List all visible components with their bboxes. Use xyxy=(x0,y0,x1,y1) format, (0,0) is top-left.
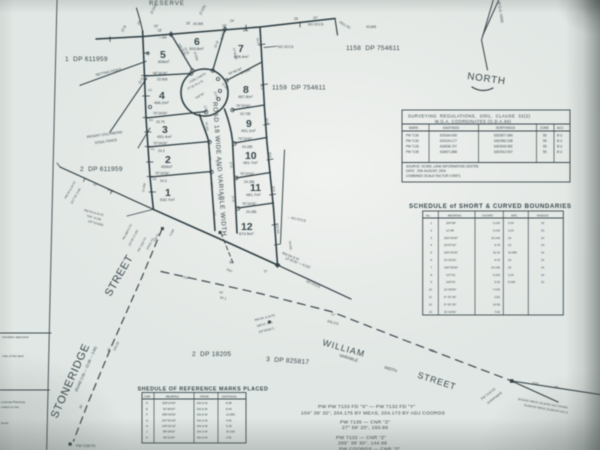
svg-text:PW PW 7133 FD "X" — PW 7132 FD: PW PW 7133 FD "X" — PW 7132 FD "Y" xyxy=(318,404,416,410)
svg-text:23.735: 23.735 xyxy=(240,112,250,116)
svg-text:10: 10 xyxy=(541,273,545,277)
svg-text:RADIUS: RADIUS xyxy=(537,214,548,218)
svg-text:24.285: 24.285 xyxy=(242,145,252,149)
svg-text:127°01': 127°01' xyxy=(446,273,456,277)
svg-text:10: 10 xyxy=(541,228,545,232)
svg-text:1158 DP 754611: 1158 DP 754611 xyxy=(346,45,400,52)
svg-text:DH & W: DH & W xyxy=(197,413,208,417)
svg-text:14: 14 xyxy=(541,265,545,269)
svg-text:10: 10 xyxy=(541,221,545,225)
svg-text:23.75: 23.75 xyxy=(156,120,165,124)
svg-text:12: 12 xyxy=(429,302,433,306)
svg-text:9.79: 9.79 xyxy=(494,243,500,247)
svg-text:PM 7133: PM 7133 xyxy=(406,145,419,149)
svg-text:—AA: —AA xyxy=(159,36,167,40)
svg-text:24.285: 24.285 xyxy=(246,210,256,214)
svg-text:NO OCCS: NO OCCS xyxy=(278,45,294,49)
svg-text:6302992.338: 6302992.338 xyxy=(494,139,513,143)
svg-text:3.225: 3.225 xyxy=(493,221,501,225)
svg-text:7.215: 7.215 xyxy=(493,288,501,292)
svg-text:10°: 10° xyxy=(313,16,319,20)
svg-text:95°34'30": 95°34'30" xyxy=(153,72,168,76)
svg-text:MARK: MARK xyxy=(409,126,419,130)
svg-text:M.G.A. COORDINATES (G.D.A.94): M.G.A. COORDINATES (G.D.A.94) xyxy=(435,119,511,124)
svg-text:104° 39' 32", 204.175 BY MEAS: 104° 39' 32", 204.175 BY MEAS, 204.173 B… xyxy=(301,411,446,417)
svg-text:DATE: 20th AUGUST, 2004: DATE: 20th AUGUST, 2004 xyxy=(406,169,446,173)
svg-text:105°51': 105°51' xyxy=(446,280,456,284)
svg-text:24.3: 24.3 xyxy=(158,149,165,153)
svg-text:532.7m²: 532.7m² xyxy=(160,197,175,202)
svg-text:1159 DP 754611: 1159 DP 754611 xyxy=(272,85,326,92)
svg-text:7.02: 7.02 xyxy=(494,310,500,314)
svg-text:(2.5): (2.5) xyxy=(215,160,220,166)
svg-text:18': 18' xyxy=(158,29,163,33)
svg-text:618936.707: 618936.707 xyxy=(440,145,457,149)
svg-text:BEARING: BEARING xyxy=(166,395,180,399)
svg-text:29°57'00": 29°57'00" xyxy=(444,243,456,247)
svg-text:ZONE: ZONE xyxy=(540,126,549,130)
svg-text:190°29'00": 190°29'00" xyxy=(444,265,458,269)
svg-text:3.23: 3.23 xyxy=(508,228,514,232)
svg-text:ACC: ACC xyxy=(557,126,564,130)
svg-text:619104.177: 619104.177 xyxy=(440,139,457,143)
svg-text:16.8: 16.8 xyxy=(268,152,273,158)
svg-text:PM 7135: PM 7135 xyxy=(406,150,419,154)
svg-text:14.56: 14.56 xyxy=(493,302,501,306)
svg-text:55: 55 xyxy=(543,134,547,138)
svg-text:9° 03' 00": 9° 03' 00" xyxy=(444,302,456,306)
svg-text:23.905: 23.905 xyxy=(157,78,167,82)
svg-text:B U: B U xyxy=(557,145,563,149)
svg-text:75°24'00": 75°24'00" xyxy=(153,112,168,116)
svg-text:CHORD: CHORD xyxy=(482,214,494,218)
svg-text:15.145: 15.145 xyxy=(491,265,500,269)
svg-text:CNR: CNR xyxy=(144,395,150,399)
svg-text:55: 55 xyxy=(543,139,547,143)
svg-text:618871.888: 618871.888 xyxy=(440,150,457,154)
svg-text:606m²: 606m² xyxy=(158,59,170,64)
svg-text:205°24'00": 205°24'00" xyxy=(444,251,458,255)
svg-text:BEARING: BEARING xyxy=(448,214,462,218)
svg-text:8.38: 8.38 xyxy=(226,401,232,405)
svg-text:E: E xyxy=(146,407,148,411)
svg-text:3.34: 3.34 xyxy=(508,221,514,225)
svg-text:25': 25' xyxy=(186,22,191,26)
svg-text:No.: No. xyxy=(426,214,431,218)
svg-text:B U: B U xyxy=(557,134,563,138)
svg-text:A A: A A xyxy=(243,29,249,33)
svg-text:CC: CC xyxy=(151,147,155,151)
svg-text:358°33'00": 358°33'00" xyxy=(162,413,176,417)
svg-text:3.225: 3.225 xyxy=(493,273,501,277)
svg-text:466.2m²: 466.2m² xyxy=(154,100,169,105)
svg-text:15°: 15° xyxy=(222,24,228,28)
svg-text:75°24'00": 75°24'00" xyxy=(236,104,251,108)
svg-text:24.3: 24.3 xyxy=(160,179,167,183)
svg-text:21°31'00": 21°31'00" xyxy=(444,258,456,262)
svg-text:9° 03' 00": 9° 03' 00" xyxy=(444,295,456,299)
svg-text:16: 16 xyxy=(508,265,512,269)
svg-text:24.285: 24.285 xyxy=(244,180,254,184)
svg-text:467.8m²: 467.8m² xyxy=(238,94,253,99)
svg-text:21.5: 21.5 xyxy=(260,84,265,90)
svg-text:CC: CC xyxy=(148,88,152,92)
svg-text:11: 11 xyxy=(429,295,432,299)
svg-text:15.5: 15.5 xyxy=(210,182,215,188)
svg-text:6302877.684: 6302877.684 xyxy=(494,134,513,138)
svg-text:5.335: 5.335 xyxy=(508,280,516,284)
svg-text:3.24: 3.24 xyxy=(508,273,514,277)
svg-text:2.81: 2.81 xyxy=(494,295,500,299)
svg-text:(2.5): (2.5) xyxy=(229,162,234,168)
svg-text:21°29'40": 21°29'40" xyxy=(444,288,456,292)
svg-text:16.8: 16.8 xyxy=(265,118,270,124)
svg-text:14: 14 xyxy=(541,236,545,240)
svg-text:43.845: 43.845 xyxy=(366,25,376,29)
svg-text:9.79: 9.79 xyxy=(494,258,500,262)
svg-text:6302912.507: 6302912.507 xyxy=(494,150,513,154)
svg-text:204°58': 204°58' xyxy=(446,221,456,225)
svg-text:F: F xyxy=(146,413,148,417)
svg-text:NORTHINGS: NORTHINGS xyxy=(496,126,515,130)
svg-text:10: 10 xyxy=(429,288,433,292)
svg-text:10: 10 xyxy=(541,280,545,284)
svg-text:459m²: 459m² xyxy=(161,164,173,169)
svg-text:10: 10 xyxy=(508,243,512,247)
svg-text:25': 25' xyxy=(294,17,299,21)
svg-text:75°24'00": 75°24'00" xyxy=(240,172,255,176)
svg-text:1 DP 611959: 1 DP 611959 xyxy=(65,56,108,63)
svg-text:31°13'50": 31°13'50" xyxy=(444,310,456,314)
svg-text:13: 13 xyxy=(429,310,433,314)
svg-text:COMBINED SCALE FACTOR 0.99971: COMBINED SCALE FACTOR 0.99971 xyxy=(406,174,461,178)
svg-text:14: 14 xyxy=(541,258,545,262)
svg-text:NO OCCS: NO OCCS xyxy=(308,23,324,27)
svg-text:16: 16 xyxy=(508,236,512,240)
svg-text:75°24'00": 75°24'00" xyxy=(155,172,170,176)
svg-text:PM 7130: PM 7130 xyxy=(406,134,419,138)
svg-text:10: 10 xyxy=(508,258,512,262)
svg-text:15.145: 15.145 xyxy=(491,236,500,240)
svg-text:92°46'00": 92°46'00" xyxy=(163,407,175,411)
svg-text:2 DP 18205: 2 DP 18205 xyxy=(192,351,231,358)
svg-text:3.215: 3.215 xyxy=(493,228,501,232)
svg-text:SOURCE: SCIMS, LAND INFORMATIO: SOURCE: SCIMS, LAND INFORMATION CENTRE xyxy=(406,165,479,169)
svg-text:55: 55 xyxy=(543,145,547,149)
svg-text:(2.3): (2.3) xyxy=(231,196,236,202)
svg-text:14: 14 xyxy=(541,251,545,255)
svg-text:PM 7132: PM 7132 xyxy=(406,139,419,143)
svg-text:75°24'00": 75°24'00" xyxy=(242,202,257,206)
svg-text:B U: B U xyxy=(557,139,563,143)
svg-text:16.8: 16.8 xyxy=(272,186,277,192)
svg-text:B U: B U xyxy=(557,150,563,154)
svg-text:[2.3]: [2.3] xyxy=(217,194,222,200)
svg-text:ARC: ARC xyxy=(511,214,518,218)
svg-text:451.7m²: 451.7m² xyxy=(243,160,258,165)
svg-text:13.080: 13.080 xyxy=(226,413,235,417)
svg-text:D: D xyxy=(146,401,148,405)
svg-text:24': 24' xyxy=(230,19,235,23)
svg-text:EASTINGS: EASTINGS xyxy=(443,126,459,130)
svg-text:SCHEDULE of SHORT & CURVED BOU: SCHEDULE of SHORT & CURVED BOUNDARIES xyxy=(409,203,572,210)
svg-text:303.8m²: 303.8m² xyxy=(189,46,204,51)
svg-text:75°24'00": 75°24'00" xyxy=(153,142,168,146)
svg-text:451.1m²: 451.1m² xyxy=(241,128,256,133)
svg-text:619164.439: 619164.439 xyxy=(440,134,457,138)
svg-text:14: 14 xyxy=(541,243,545,247)
svg-text:DH & W: DH & W xyxy=(197,407,208,411)
svg-text:2 DP 611959: 2 DP 611959 xyxy=(80,166,123,173)
svg-text:10.15: 10.15 xyxy=(493,251,501,255)
svg-text:"Z": "Z" xyxy=(263,269,268,274)
svg-text:OC: OC xyxy=(153,177,157,181)
svg-text:DISTANCE: DISTANCE xyxy=(222,395,236,399)
svg-text:75°24'00": 75°24'00" xyxy=(238,137,253,141)
svg-text:34.065: 34.065 xyxy=(193,22,203,26)
svg-text:200°19'00": 200°19'00" xyxy=(444,236,458,240)
svg-text:SHEDULE OF REFERENCE MARKS PLA: SHEDULE OF REFERENCE MARKS PLACED xyxy=(138,387,269,393)
svg-text:6303043.982: 6303043.982 xyxy=(494,145,513,149)
svg-text:12°48': 12°48' xyxy=(446,228,455,232)
svg-text:10.385: 10.385 xyxy=(508,251,517,255)
svg-text:674.5m²: 674.5m² xyxy=(239,231,254,236)
svg-text:FROM: FROM xyxy=(200,395,209,399)
svg-text:451.4m²: 451.4m² xyxy=(157,134,172,139)
svg-text:481.7m²: 481.7m² xyxy=(246,192,261,197)
svg-text:SURVEYING REGULATIONS, 2001,: SURVEYING REGULATIONS, 2001, CLAUSE 32(2… xyxy=(408,114,531,119)
svg-text:55: 55 xyxy=(543,150,547,154)
svg-text:OC: OC xyxy=(149,118,153,122)
svg-text:DH & W: DH & W xyxy=(197,401,208,405)
svg-text:5.32: 5.32 xyxy=(494,280,500,284)
svg-text:328°14'00": 328°14'00" xyxy=(162,401,176,405)
svg-text:8.44: 8.44 xyxy=(226,407,232,411)
